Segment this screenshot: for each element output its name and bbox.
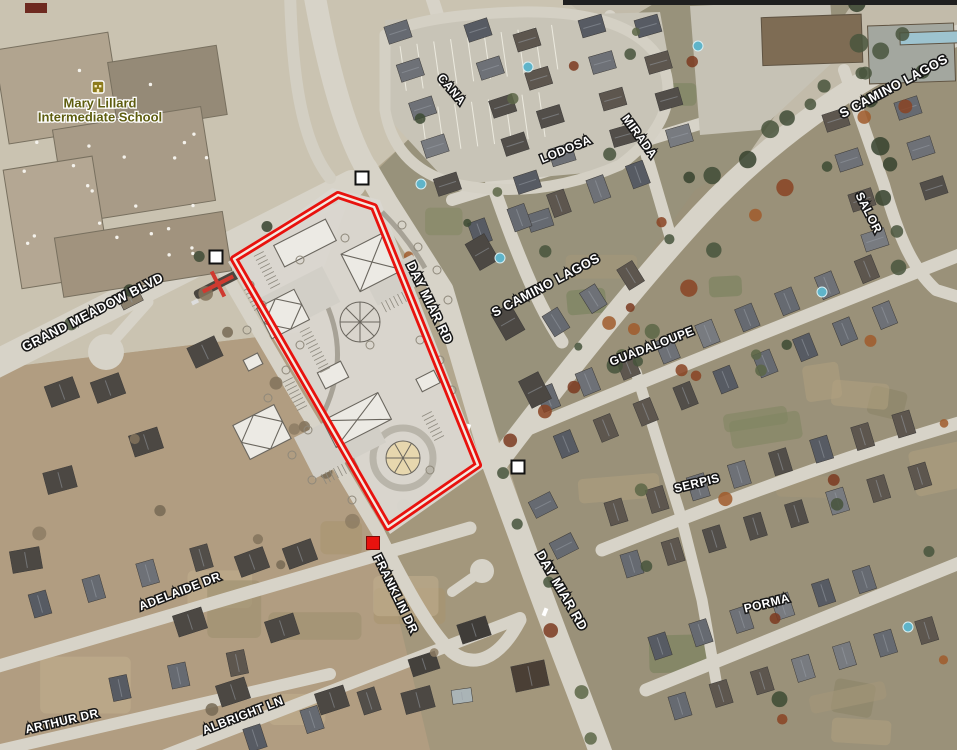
vertex-handle-marker[interactable] [512, 461, 525, 474]
letterbox-layer [563, 0, 957, 5]
vertex-handle-marker[interactable] [356, 172, 369, 185]
satellite-map: GRAND MEADOW BLVDDAY MIAR RDDAY MIAR RDS… [0, 0, 957, 750]
poi-name-line2: Intermediate School [38, 109, 162, 124]
letterbox-bar [563, 0, 957, 5]
poi-name-line1: Mary Lillard [64, 95, 137, 110]
map-viewport[interactable]: GRAND MEADOW BLVDDAY MIAR RDDAY MIAR RDS… [0, 0, 957, 750]
selected-handle-marker[interactable] [367, 537, 380, 550]
vertex-handle-marker[interactable] [210, 251, 223, 264]
school-icon [92, 81, 104, 93]
